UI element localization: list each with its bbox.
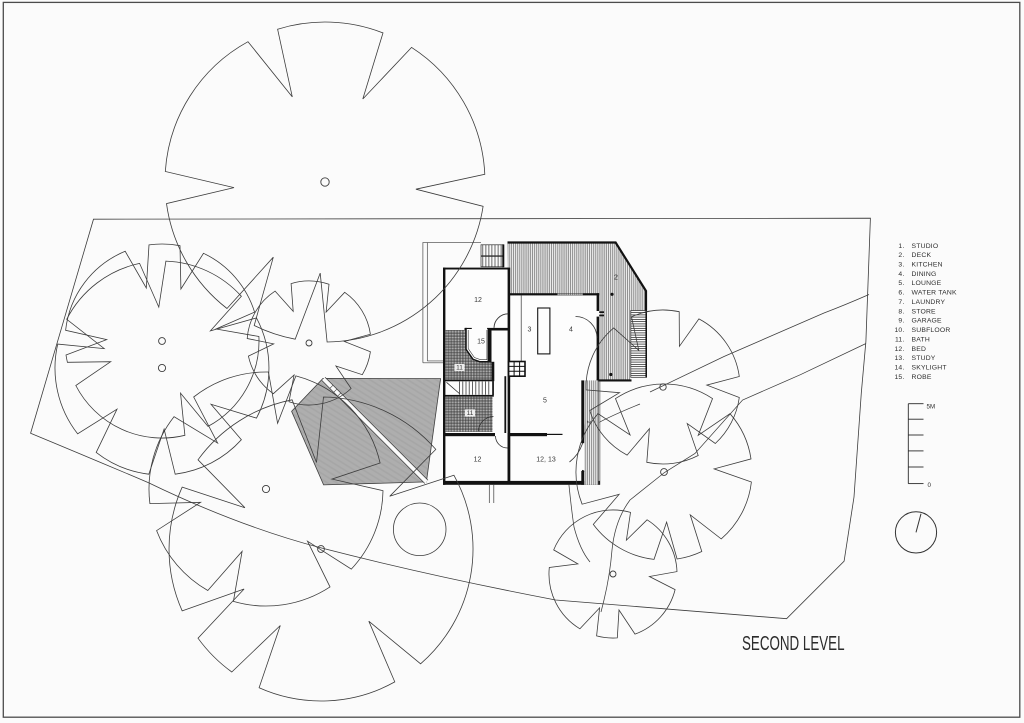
svg-text:4: 4 [569,327,573,334]
svg-text:SECOND LEVEL: SECOND LEVEL [742,633,845,655]
svg-text:BATH: BATH [912,336,930,343]
svg-text:3.: 3. [898,262,904,269]
svg-text:7.: 7. [898,299,904,306]
svg-text:STORE: STORE [912,308,937,315]
svg-text:ROBE: ROBE [912,374,932,381]
svg-text:STUDY: STUDY [912,355,936,362]
svg-text:8.: 8. [898,308,904,315]
svg-text:10.: 10. [894,327,904,334]
svg-text:SUBFLOOR: SUBFLOOR [912,327,951,334]
svg-text:15: 15 [477,339,485,346]
svg-text:11: 11 [467,410,474,417]
svg-text:5M: 5M [927,404,936,411]
svg-text:LOUNGE: LOUNGE [912,280,942,287]
svg-text:13.: 13. [894,355,904,362]
svg-text:11.: 11. [895,336,905,343]
svg-text:14.: 14. [894,365,904,372]
svg-text:1.: 1. [898,243,904,250]
svg-text:2: 2 [585,420,591,423]
svg-text:BED: BED [912,346,927,353]
svg-text:6.: 6. [898,290,904,297]
svg-text:9.: 9. [898,318,904,325]
svg-text:2.: 2. [898,252,904,259]
svg-text:5.: 5. [898,280,904,287]
svg-text:12: 12 [474,297,482,304]
svg-text:4.: 4. [898,271,904,278]
svg-text:LAUNDRY: LAUNDRY [912,299,946,306]
svg-text:DINING: DINING [912,271,937,278]
svg-text:GARAGE: GARAGE [912,318,943,325]
svg-text:0: 0 [928,482,932,489]
svg-text:2: 2 [614,275,618,282]
svg-text:3: 3 [528,327,532,334]
svg-text:12: 12 [474,457,482,464]
svg-text:12.: 12. [894,346,904,353]
svg-text:SKYLIGHT: SKYLIGHT [912,365,947,372]
svg-text:5: 5 [543,398,547,405]
svg-text:KITCHEN: KITCHEN [912,262,943,269]
svg-text:15.: 15. [894,374,904,381]
svg-text:12, 13: 12, 13 [536,457,556,464]
svg-text:11: 11 [456,365,463,372]
svg-text:STUDIO: STUDIO [912,243,939,250]
svg-text:WATER TANK: WATER TANK [912,290,957,297]
svg-text:DECK: DECK [912,252,932,259]
